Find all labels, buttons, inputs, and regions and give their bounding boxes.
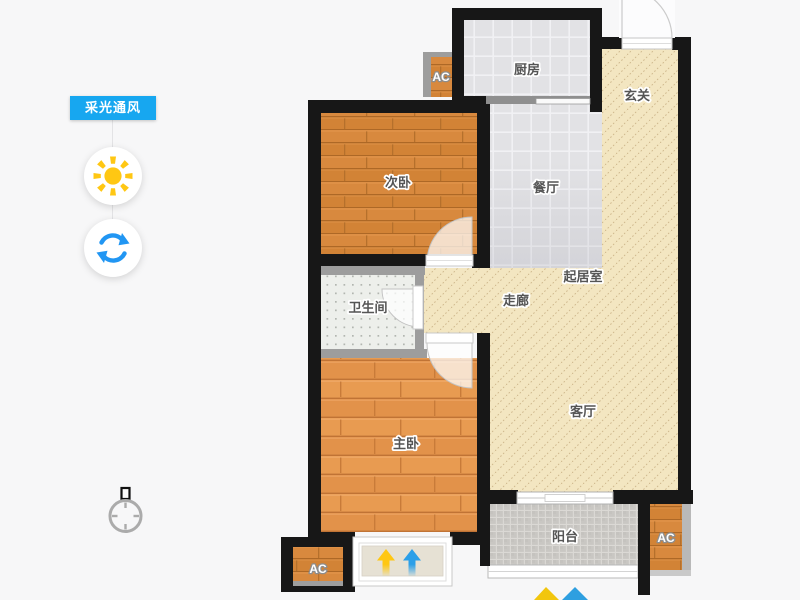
room-label-bedroom-master: 主卧 <box>393 436 419 451</box>
room-label-living-room: 客厅 <box>570 404 596 419</box>
floorplan-viewer: 采光通风 <box>0 0 800 600</box>
entrance-door <box>619 0 675 49</box>
room-label-bedroom-second: 次卧 <box>385 175 411 190</box>
sliding-door-kitchen <box>486 96 590 104</box>
room-label-balcony: 阳台 <box>552 529 578 544</box>
room-label-entrance: 玄关 <box>624 88 650 103</box>
refresh-icon <box>93 228 133 268</box>
room-label-kitchen: 厨房 <box>514 62 540 77</box>
ventilation-button[interactable] <box>84 219 142 277</box>
balcony-window <box>517 492 613 504</box>
room-label-dining: 餐厅 <box>532 180 559 195</box>
master-bay-window <box>353 537 452 586</box>
daylight-button[interactable] <box>84 147 142 205</box>
room-kitchen-floor <box>464 19 590 97</box>
room-label-living-core: 起居室 <box>562 269 602 284</box>
ac-label-bottom-right: AC <box>657 531 675 545</box>
room-label-bathroom: 卫生间 <box>348 300 387 315</box>
room-label-corridor: 走廊 <box>503 293 529 308</box>
ac-label-bottom-left: AC <box>309 562 327 576</box>
floor-plan: 厨房 玄关 次卧 餐厅 起居室 走廊 卫生间 主卧 客厅 阳台 AC AC AC <box>0 0 800 600</box>
daylight-ventilation-badge[interactable]: 采光通风 <box>70 96 156 120</box>
direction-arrows <box>534 587 588 600</box>
ac-label-top: AC <box>432 70 450 84</box>
sun-icon <box>91 154 135 198</box>
